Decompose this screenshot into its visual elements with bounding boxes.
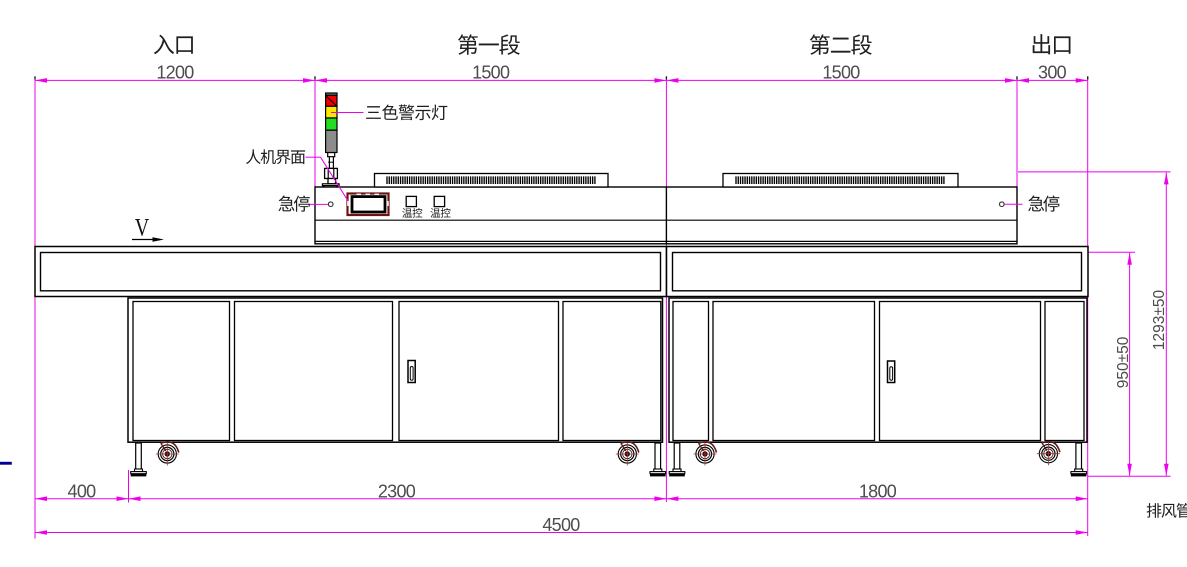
svg-text:1200: 1200 xyxy=(156,63,194,83)
svg-text:1800: 1800 xyxy=(859,481,897,501)
svg-text:V: V xyxy=(135,215,150,242)
svg-text:1293±50: 1293±50 xyxy=(1151,290,1168,351)
svg-text:1500: 1500 xyxy=(822,63,860,83)
svg-text:300: 300 xyxy=(1038,63,1067,83)
svg-text:4500: 4500 xyxy=(542,515,580,535)
svg-text:1500: 1500 xyxy=(472,63,510,83)
svg-text:400: 400 xyxy=(68,481,97,501)
svg-text:2300: 2300 xyxy=(378,481,416,501)
svg-text:950±50: 950±50 xyxy=(1115,336,1132,388)
